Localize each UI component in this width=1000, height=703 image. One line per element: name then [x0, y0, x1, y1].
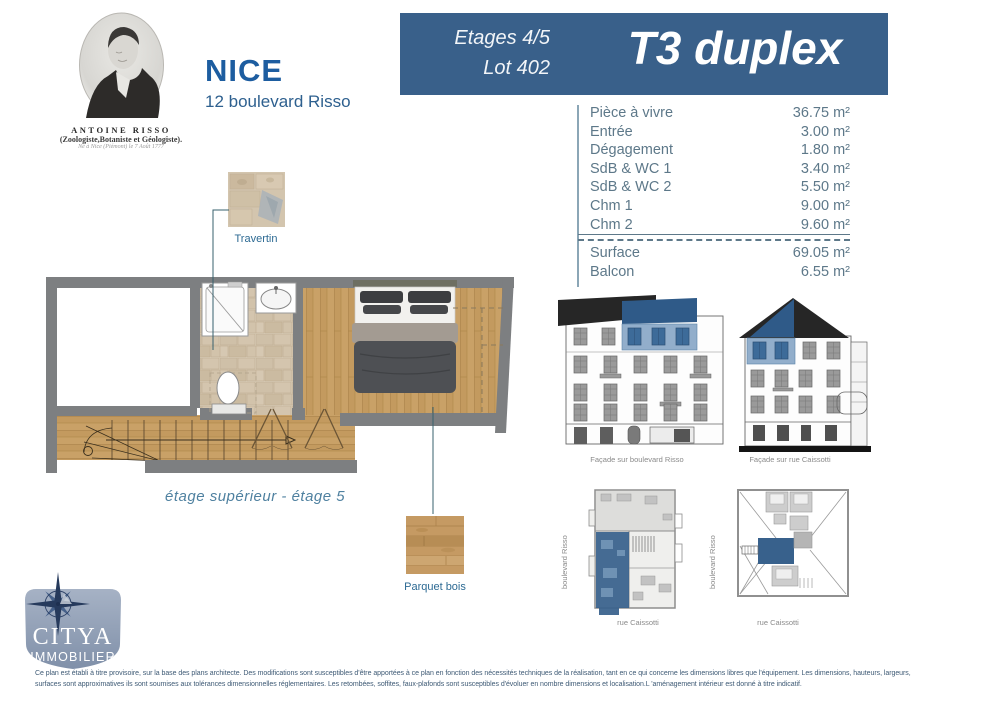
citya-logo: CITYA IMMOBILIER: [14, 570, 132, 678]
facade-risso-caption: Façade sur boulevard Risso: [552, 455, 722, 464]
row-label: Surface: [590, 244, 640, 263]
portrait-role: (Zoologiste,Botaniste et Géologiste).: [36, 135, 206, 144]
city-title: NICE: [205, 53, 283, 89]
parquet-sample: [406, 516, 464, 574]
table-row: Chm 29.60 m²: [578, 216, 850, 235]
disclaimer-line1: Ce plan est établi à titre provisoire, s…: [35, 670, 911, 677]
row-label: Entrée: [590, 123, 633, 142]
shower: [202, 282, 248, 336]
row-label: Balcon: [590, 263, 634, 282]
banner-floors: Etages 4/5: [400, 23, 550, 53]
facade-caissotti-caption: Façade sur rue Caissotti: [715, 455, 865, 464]
brand-subtitle: IMMOBILIER: [30, 650, 116, 664]
row-value: 1.80 m²: [801, 141, 850, 160]
table-row-total: Balcon6.55 m²: [578, 263, 850, 282]
mini-plan-level5: [583, 484, 693, 622]
floor-plan-drawing: [40, 262, 520, 477]
table-row: Chm 19.00 m²: [578, 197, 850, 216]
row-label: SdB & WC 2: [590, 178, 671, 197]
table-row-total: Surface69.05 m²: [578, 244, 850, 263]
mini-plan-level6: [728, 486, 858, 608]
row-label: Dégagement: [590, 141, 673, 160]
main-floor-plan: [40, 262, 520, 477]
facade-risso: [558, 292, 730, 452]
void-room-floor: [57, 288, 190, 408]
table-row: SdB & WC 13.40 m²: [578, 160, 850, 179]
double-bed: [352, 280, 458, 393]
disclaimer-line2: surfaces sont approximatives ils sont so…: [35, 681, 802, 688]
table-separator-solid: [578, 234, 850, 235]
portrait-name: ANTOINE RISSO: [36, 125, 206, 135]
table-row: SdB & WC 25.50 m²: [578, 178, 850, 197]
banner-floors-lot: Etages 4/5 Lot 402: [400, 23, 550, 83]
table-row: Entrée3.00 m²: [578, 123, 850, 142]
row-value: 69.05 m²: [793, 244, 850, 263]
travertin-label: Travertin: [216, 233, 296, 245]
plan-sheet: ANTOINE RISSO (Zoologiste,Botaniste et G…: [0, 0, 1000, 703]
area-table: Pièce à vivre36.75 m² Entrée3.00 m² Déga…: [578, 104, 852, 281]
sink: [256, 283, 296, 313]
row-label: Chm 1: [590, 197, 633, 216]
row-value: 6.55 m²: [801, 263, 850, 282]
mini-plan1-bottom-street: rue Caissotti: [578, 618, 698, 627]
parquet-label: Parquet bois: [395, 581, 475, 593]
row-value: 9.60 m²: [801, 216, 850, 235]
facade-caissotti: [733, 296, 873, 454]
mini-plan1-side-street: boulevard Risso: [560, 512, 569, 612]
row-label: Chm 2: [590, 216, 633, 235]
brand-name: CITYA: [33, 624, 114, 650]
table-separator-dashed: [578, 239, 850, 241]
table-row: Dégagement1.80 m²: [578, 141, 850, 160]
row-label: SdB & WC 1: [590, 160, 671, 179]
antoine-risso-portrait: ANTOINE RISSO (Zoologiste,Botaniste et G…: [78, 12, 206, 150]
unit-type: T3 duplex: [590, 21, 880, 75]
mini-plan2-bottom-street: rue Caissotti: [718, 618, 838, 627]
row-value: 9.00 m²: [801, 197, 850, 216]
portrait-engraving-icon: [78, 12, 165, 118]
address: 12 boulevard Risso: [205, 92, 351, 112]
lot-banner: Etages 4/5 Lot 402 T3 duplex: [400, 13, 888, 95]
row-value: 36.75 m²: [793, 104, 850, 123]
banner-lot: Lot 402: [400, 53, 550, 83]
row-label: Pièce à vivre: [590, 104, 673, 123]
row-value: 3.40 m²: [801, 160, 850, 179]
floor-caption: étage supérieur - étage 5: [165, 488, 345, 505]
travertin-sample: [228, 172, 285, 227]
row-value: 5.50 m²: [801, 178, 850, 197]
portrait-birth: Né à Nice (Piémont) le 7 Août 1777: [36, 144, 206, 150]
table-row: Pièce à vivre36.75 m²: [578, 104, 850, 123]
mini-plan2-side-street: boulevard Risso: [708, 512, 717, 612]
row-value: 3.00 m²: [801, 123, 850, 142]
